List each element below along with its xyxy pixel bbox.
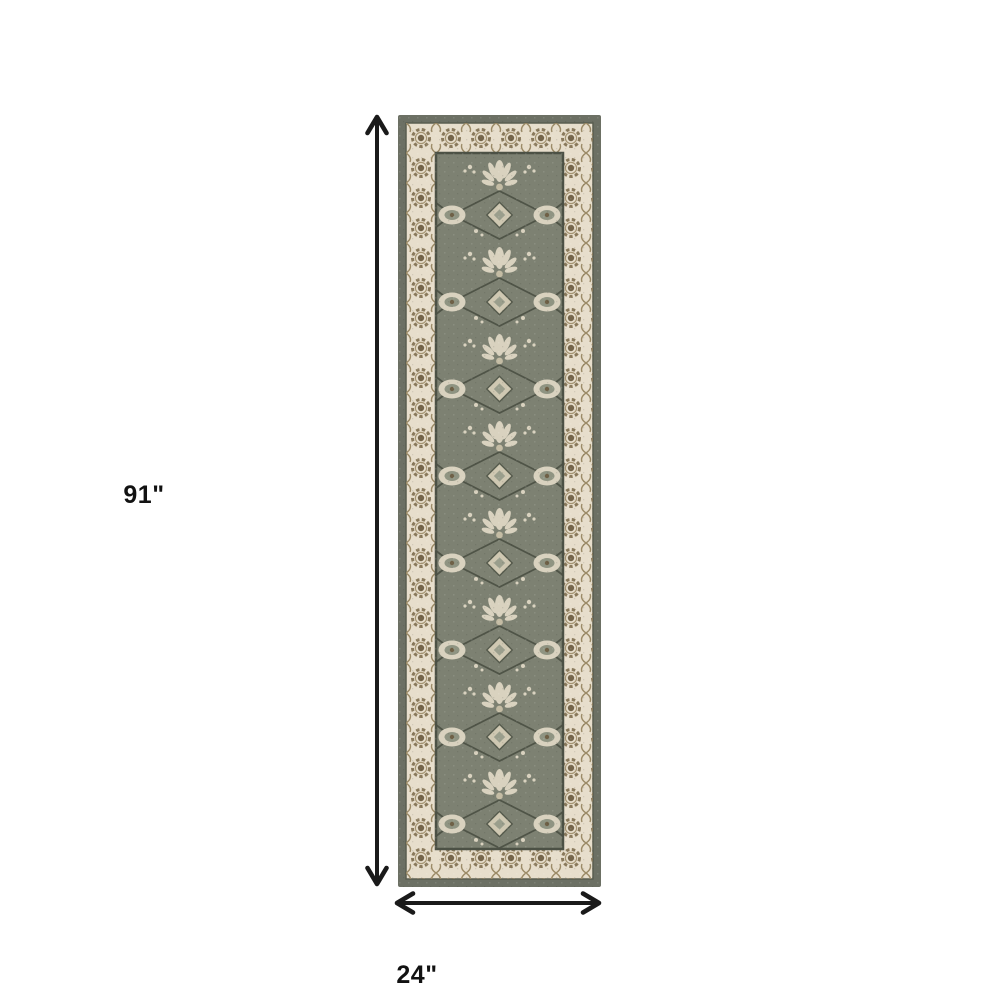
width-dimension-label: 24" [383,963,451,988]
height-dimension-label: 91" [107,483,181,508]
rug-photo [398,115,601,887]
rug-texture-overlay [398,115,601,887]
product-dimension-image: 91" 24" [0,0,1000,1000]
